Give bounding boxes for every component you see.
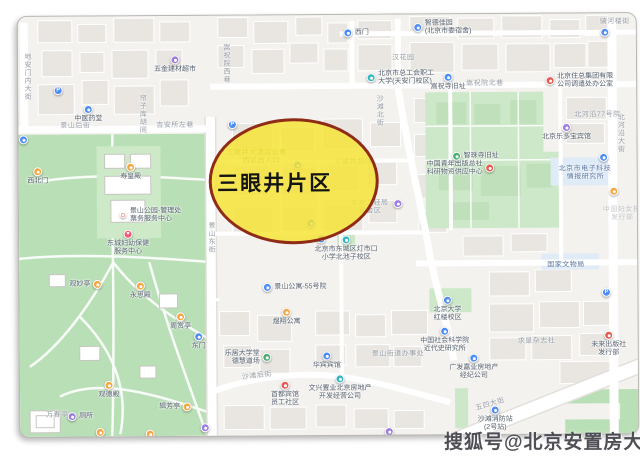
street-label-st-hanhuayuan: 汉花园 <box>392 52 415 62</box>
poi-label-line: 中国青年出版总社 <box>427 161 483 169</box>
poi-label-line: 德慧道场 <box>225 357 260 365</box>
poi-label-line: 首都宾馆 <box>271 391 299 399</box>
poi-label-line: 嵩祝寺旧址 <box>431 83 466 91</box>
poi-dot-icon <box>99 431 102 434</box>
street-label-st-shatanbei: 沙滩北街 <box>374 95 384 127</box>
map-canvas[interactable]: 三眼井胡同三眼井大酒店公寓西区出入口北京二轻局宿舍区 三眼井片区 地安门内大街景… <box>18 13 639 437</box>
poi-label-fuyou-baojian: 东城妇幼保健服务中心 <box>107 240 149 255</box>
poi-pin-pin-right-1[interactable] <box>599 153 608 162</box>
poi-dot-icon <box>71 415 74 418</box>
street-label-lbl-dianzikeji2: 情报研究所 <box>567 171 605 181</box>
street-label-st-lianziku: 帘子库胡同 <box>137 94 147 134</box>
poi-pin-shekeyuan[interactable] <box>440 327 449 336</box>
poi-dot-icon <box>186 405 189 408</box>
poi-dot-icon <box>607 334 610 337</box>
poi-dot-icon <box>266 286 269 289</box>
poi-label-line: 辑芳亭 <box>159 403 180 411</box>
poi-label-line: 东城妇幼保健 <box>107 240 149 248</box>
poi-pin-leju-daxuetang[interactable] <box>262 353 271 362</box>
street-label-st-shatanhou: 沙滩后街 <box>241 369 272 382</box>
poi-label-dengshikou-xiaoxue: 北京市东城区灯市口小学北池子校区 <box>315 246 378 261</box>
poi-dot-icon <box>446 299 449 302</box>
poi-pin-huabin-hotel[interactable] <box>322 351 331 360</box>
poi-label-line: 员工社区 <box>271 399 299 407</box>
poi-label-line: 永思殿 <box>130 292 151 300</box>
poi-dot-icon <box>265 356 268 359</box>
parking-icon: P <box>56 88 60 94</box>
poi-pin-gonghui-daxue[interactable] <box>367 73 376 82</box>
poi-label-huabin-hotel: 华宾宾馆 <box>313 362 341 370</box>
poi-label-line: 乐居大学堂 <box>225 350 260 358</box>
poi-dot-icon <box>565 126 568 129</box>
poi-pin-pin-bottom-1[interactable] <box>385 427 394 436</box>
street-label-st-qihelou: 骑河楼街 <box>600 16 630 26</box>
poi-dot-icon <box>396 202 399 205</box>
poi-label-west-gate-top: 西门 <box>355 29 369 37</box>
poi-label-east-gate: 东门 <box>192 343 206 351</box>
poi-pin-guanmiaoting[interactable] <box>93 280 102 289</box>
poi-label-line: 中国社会科学院 <box>420 337 469 345</box>
poi-pin-tcm-shop[interactable] <box>84 105 93 114</box>
poi-label-yuxiang-gongyu: 煜翔公寓 <box>273 318 301 326</box>
poi-pin-xibeimen[interactable] <box>33 167 42 176</box>
poi-dot-icon <box>179 315 182 318</box>
poi-dot-icon <box>416 26 419 29</box>
poi-pin-guandedian[interactable] <box>104 381 113 390</box>
poi-label-line: 观德殿 <box>99 391 120 399</box>
poi-dot-icon <box>447 76 450 79</box>
street-label-lbl-qiushi: 求是杂志社 <box>518 336 556 346</box>
poi-pin-zhizhusi[interactable] <box>452 152 461 161</box>
poi-label-line: 煜翔公寓 <box>273 318 301 326</box>
poi-pin-beida-honglou[interactable] <box>443 296 452 305</box>
poi-pin-jifangting[interactable] <box>183 402 192 411</box>
poi-label-line: 北京乐多宝宾馆 <box>542 133 591 141</box>
street-label-lbl-beiheyan77: 北河沿77号院 <box>574 109 620 119</box>
poi-pin-pin-right-2[interactable] <box>609 187 618 196</box>
poi-label-line: 北京市东城区灯市口 <box>315 246 378 254</box>
poi-label-zhuzong-group: 北京住总集团有限公司调遣处办公室 <box>557 73 613 88</box>
poi-label-shekeyuan: 中国社会科学院近代史研究所 <box>420 337 469 352</box>
poi-pin-yuxiang-gongyu[interactable] <box>282 308 291 317</box>
street-label-lbl-funvbao2: 发行部 <box>611 212 634 222</box>
poi-dot-icon <box>22 138 25 141</box>
poi-label-park-office: 景山公园-管理处票务服务中心 <box>130 207 181 222</box>
poi-pin-zhide-jiayuan[interactable] <box>413 23 422 32</box>
poi-label-hardware-store: 五金建材超市 <box>154 66 196 74</box>
poi-label-hotel-ledobao: 北京乐多宝宾馆 <box>542 133 591 141</box>
poi-dot-icon <box>129 166 132 169</box>
poi-label-line: 西门 <box>355 29 369 37</box>
poi-pin-east-gate[interactable] <box>194 332 203 341</box>
poi-dot-icon <box>197 335 200 338</box>
poi-label-qingnian-press: 中国青年出版总社科研物资供应中心 <box>427 161 483 176</box>
poi-label-tcm-shop: 中医药堂 <box>74 115 102 123</box>
map-photo-frame: 三眼井胡同三眼井大酒店公寓西区出入口北京二轻局宿舍区 三眼井片区 地安门内大街景… <box>17 12 640 438</box>
poi-label-songzhusi: 嵩祝寺旧址 <box>431 83 466 91</box>
poi-label-line: 智珠寺旧址 <box>464 152 499 160</box>
poi-label-line: 西北门 <box>27 178 48 186</box>
poi-dot-icon <box>494 408 497 411</box>
poi-dot-icon <box>283 384 286 387</box>
heart-icon: ♥ <box>126 231 129 237</box>
poi-pin-pin-bottom-2[interactable] <box>201 423 210 432</box>
poi-label-guandedian: 观德殿 <box>99 391 120 399</box>
poi-label-beida-honglou: 北京大学红楼校区 <box>433 306 461 321</box>
poi-label-gonghui-daxue: 北京市总工会职工大学(天安门校区) <box>378 70 434 85</box>
poi-dot-icon <box>173 58 176 61</box>
poi-pin-dengshikou-xiaoxue[interactable] <box>342 235 351 244</box>
poi-dot-icon <box>345 238 348 241</box>
street-label-st-dianmennei: 地安门内大街 <box>22 53 32 101</box>
poi-pin-yongsidian[interactable] <box>136 282 145 291</box>
poi-dot-icon <box>455 155 458 158</box>
poi-pin-zhuzong-group[interactable] <box>546 76 555 85</box>
poi-label-line: 近代史研究所 <box>420 345 469 353</box>
poi-label-line: 服务中心 <box>107 248 149 256</box>
poi-pin-hardware-store[interactable] <box>170 55 179 64</box>
poi-dot-icon <box>388 430 391 433</box>
poi-dot-icon <box>443 330 446 333</box>
street-label-lbl-jiedao: 景山街道办事处 <box>372 348 425 358</box>
poi-label-line: 开发经营公司 <box>309 392 372 400</box>
poi-pin-fuyou-baojian[interactable]: ♥ <box>124 230 133 239</box>
poi-pin-pin-topright[interactable] <box>600 28 609 37</box>
poi-label-line: 厕所 <box>79 413 93 421</box>
poi-dot-icon <box>346 31 349 34</box>
poi-dot-icon <box>602 156 605 159</box>
poi-label-line: 广发嘉业房地产 <box>449 364 498 372</box>
poi-label-zhide-jiayuan: 智德佳园(北京市委宿舍) <box>425 20 472 35</box>
poi-label-shouhuangdian: 寿皇殿 <box>120 173 141 181</box>
poi-label-line: 北京住总集团有限 <box>557 73 613 81</box>
poi-pin-parking-nw[interactable]: P <box>54 86 63 95</box>
map-poi-layer: 地安门内大街景山后街吉安所左巷帘子库胡同嵩祝院西巷沙滩北街嵩祝院北巷北河沿大街景… <box>18 13 639 437</box>
poi-dot-icon <box>36 170 39 173</box>
poi-pin-weilai-press[interactable] <box>604 331 613 340</box>
poi-label-line: 未来出版社 <box>591 341 626 349</box>
poi-label-yongsidian: 永思殿 <box>130 292 151 300</box>
poi-pin-parking-right[interactable]: P <box>602 288 611 297</box>
poi-pin-pin-west-gate[interactable] <box>19 135 28 144</box>
poi-label-shoudu-shequ: 首都宾馆员工社区 <box>271 391 299 406</box>
poi-dot-icon <box>338 377 341 380</box>
poi-label-line: 景山公园-管理处 <box>130 207 181 215</box>
poi-label-jifangting: 辑芳亭 <box>159 403 180 411</box>
street-label-lbl-wanchunting: 万春亭 <box>46 410 69 420</box>
street-label-lbl-guojiawenwuju: 国家文物局 <box>547 259 585 269</box>
poi-dot-icon <box>325 355 328 358</box>
poi-label-line: 北京市总工会职工 <box>378 70 434 78</box>
street-label-st-songzhuxixiang: 嵩祝院西巷 <box>221 44 231 84</box>
poi-label-xibeimen: 西北门 <box>27 178 48 186</box>
poi-label-line: 文兴置业北京房地产 <box>308 385 371 393</box>
poi-label-line: 华宾宾馆 <box>313 362 341 370</box>
street-label-st-jiansuozuo: 吉安所左巷 <box>156 120 194 130</box>
poi-pin-west-gate-top[interactable] <box>343 28 352 37</box>
poi-pin-wenxing-zhiye[interactable] <box>335 374 344 383</box>
poi-label-guangfa-jiaye: 广发嘉业房地产经纪公司 <box>449 364 498 379</box>
poi-pin-pin-park-2[interactable] <box>146 430 155 438</box>
poi-label-gongyu-55: 景山公寓-55号院 <box>274 283 326 291</box>
sohu-watermark: 搜狐号@北京安置房大全 <box>444 427 640 454</box>
poi-dot-icon <box>285 311 288 314</box>
poi-dot-icon <box>139 285 142 288</box>
poi-dot-icon <box>96 283 99 286</box>
poi-dot-icon <box>549 79 552 82</box>
poi-dot-icon <box>87 108 90 111</box>
poi-label-weilai-press: 未来出版社发行部 <box>591 341 626 356</box>
poi-dot-icon <box>370 76 373 79</box>
poi-dot-icon <box>612 190 615 193</box>
poi-label-line: 五金建材超市 <box>154 66 196 74</box>
poi-label-line: 红楼校区 <box>434 314 462 322</box>
poi-label-line: (北京市委宿舍) <box>425 27 472 35</box>
poi-dot-icon <box>603 31 606 34</box>
parking-icon: P <box>231 122 235 128</box>
parking-icon: P <box>605 290 609 296</box>
poi-label-line: 小学北池子校区 <box>315 253 378 261</box>
poi-label-line: 经纪公司 <box>449 371 498 379</box>
poi-pin-guangfa-jiaye[interactable] <box>469 354 478 363</box>
poi-pin-shouhuangdian[interactable] <box>126 163 135 172</box>
poi-label-zhoushangting: 周赏亭 <box>170 323 191 331</box>
poi-pin-pin-park-1[interactable] <box>96 428 105 437</box>
poi-label-wenxing-zhiye: 文兴置业北京房地产开发经营公司 <box>308 385 371 400</box>
street-label-st-jingshandong: 景山东街 <box>206 222 216 254</box>
poi-label-guanmiaoting: 观妙亭 <box>69 281 90 289</box>
poi-pin-zhoushangting[interactable] <box>176 312 185 321</box>
poi-pin-xiaofangzhan[interactable] <box>491 405 500 414</box>
poi-label-zhizhusi: 智珠寺旧址 <box>464 152 499 160</box>
screenshot-stage: 三眼井胡同三眼井大酒店公寓西区出入口北京二轻局宿舍区 三眼井片区 地安门内大街景… <box>0 0 640 456</box>
poi-label-line: 北京大学 <box>433 306 461 314</box>
poi-pin-songzhusi[interactable] <box>444 73 453 82</box>
poi-pin-hotel-ledobao[interactable] <box>562 123 571 132</box>
poi-pin-gongyu-55[interactable] <box>263 283 272 292</box>
poi-label-line: 寿皇殿 <box>120 173 141 181</box>
poi-label-line: 票务服务中心 <box>130 215 181 223</box>
poi-label-line: 中医药堂 <box>74 115 102 123</box>
poi-label-line: 沙滩消防站 <box>478 416 513 424</box>
poi-label-line: 东门 <box>192 343 206 351</box>
poi-label-line: 周赏亭 <box>170 323 191 331</box>
poi-label-line: 景山公寓-55号院 <box>274 283 326 291</box>
poi-label-leju-daxuetang: 乐居大学堂德慧道场 <box>225 350 260 365</box>
poi-pin-cesuo[interactable] <box>68 412 77 421</box>
poi-label-line: 大学(天安门校区) <box>378 77 434 85</box>
poi-label-cesuo: 厕所 <box>79 413 93 421</box>
poi-pin-shoudu-shequ[interactable] <box>280 381 289 390</box>
poi-label-line: 发行部 <box>591 349 626 357</box>
poi-pin-parking-oval[interactable]: P <box>228 120 237 129</box>
poi-pin-pin-mid-purple[interactable] <box>393 199 402 208</box>
poi-label-line: 公司调遣处办公室 <box>557 80 613 88</box>
poi-label-line: 观妙亭 <box>69 281 90 289</box>
street-label-st-songzhubeixiang: 嵩祝院北巷 <box>466 78 504 88</box>
poi-pin-park-office[interactable] <box>120 212 126 218</box>
poi-pin-qingnian-press[interactable] <box>485 163 494 172</box>
poi-dot-icon <box>204 426 207 429</box>
poi-dot-icon <box>107 384 110 387</box>
poi-dot-icon <box>121 214 124 217</box>
poi-dot-icon <box>149 433 152 436</box>
poi-dot-icon <box>488 167 491 170</box>
poi-label-line: 科研物资供应中心 <box>427 168 483 176</box>
poi-dot-icon <box>472 357 475 360</box>
